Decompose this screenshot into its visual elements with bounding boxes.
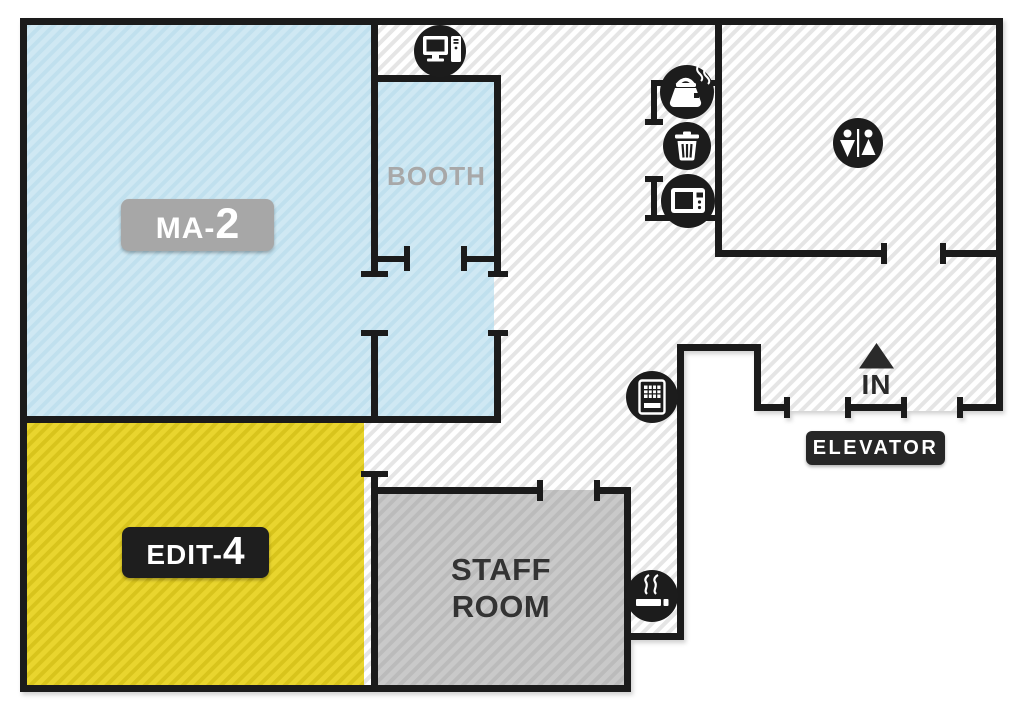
room-label-edit4: EDIT-4	[122, 527, 269, 578]
door-gap-ma2	[371, 277, 378, 330]
floor-plan-stage: MA-2 EDIT-4 BOOTH STAFF ROOM IN ELEVATOR	[0, 0, 1024, 719]
elevator-label: ELEVATOR	[806, 431, 945, 465]
entrance-label: IN	[844, 369, 909, 401]
staff-room-line1: STAFF	[375, 551, 627, 588]
room-label-staff-room: STAFF ROOM	[375, 551, 627, 625]
computer-icon	[414, 25, 466, 77]
room-label-ma2: MA-2	[121, 199, 274, 251]
room-booth-floor	[378, 82, 494, 416]
ma2-label-prefix: MA-	[156, 212, 216, 245]
smoking-area-icon	[626, 570, 678, 622]
staff-room-line2: ROOM	[375, 588, 627, 625]
kettle-icon	[660, 65, 714, 119]
edit4-label-prefix: EDIT-	[146, 539, 223, 570]
vending-machine-icon	[626, 371, 678, 423]
edit4-label-number: 4	[223, 530, 245, 573]
ma2-label-number: 2	[215, 200, 239, 248]
restroom-icon	[833, 118, 883, 168]
room-label-booth: BOOTH	[375, 161, 498, 192]
trash-icon	[663, 122, 711, 170]
microwave-icon	[661, 174, 715, 228]
